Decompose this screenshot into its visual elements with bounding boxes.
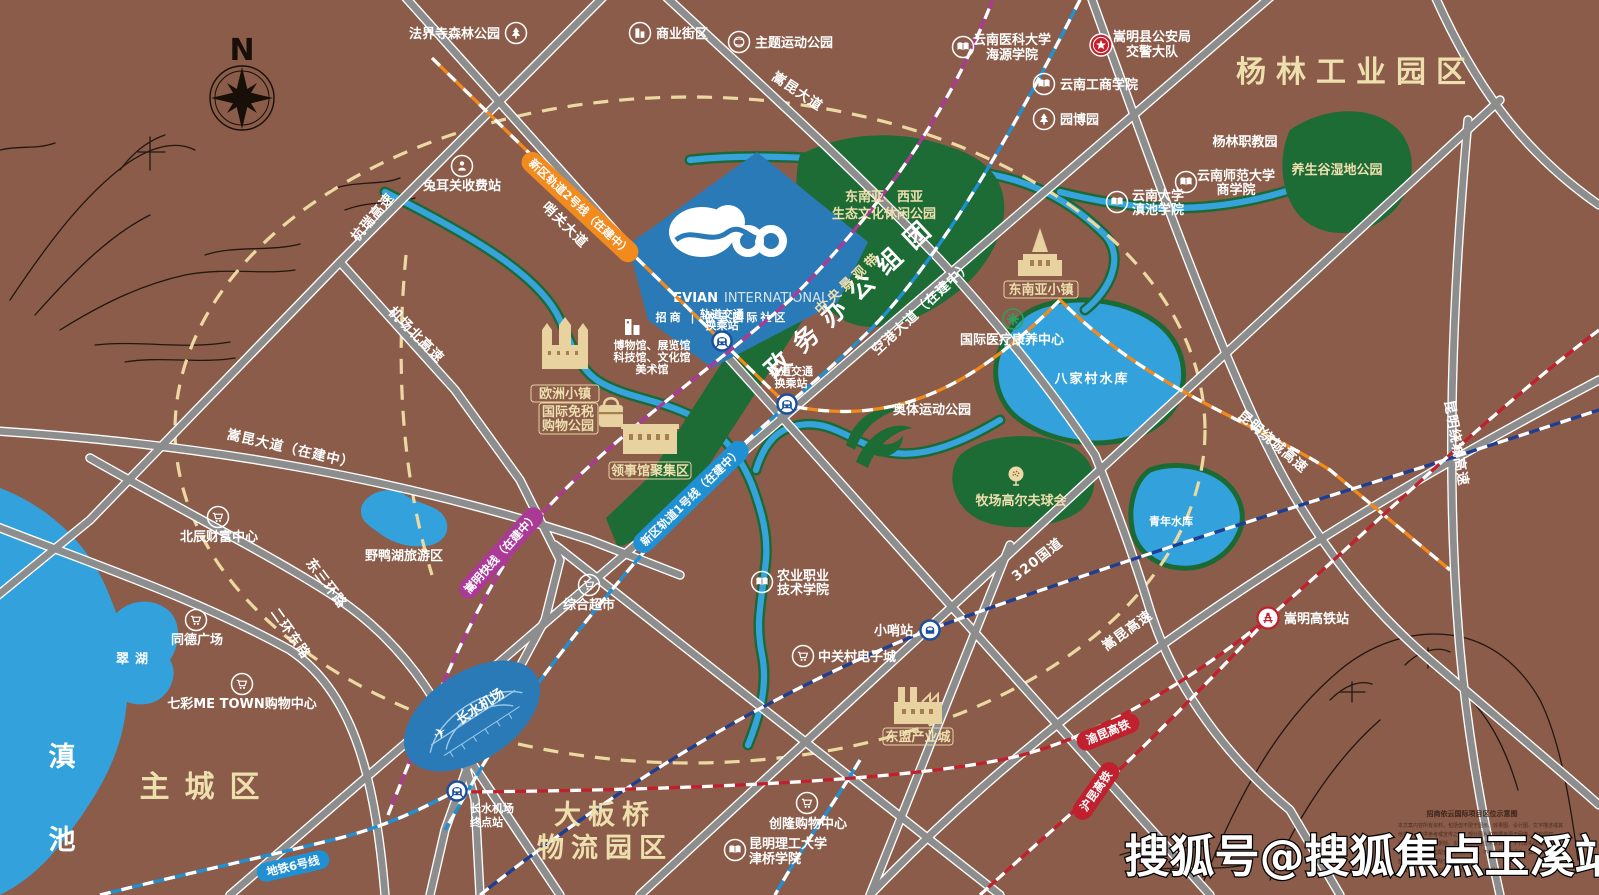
fajiesi-label: 法界寺森林公园 bbox=[409, 26, 500, 42]
compass-n: N bbox=[229, 33, 254, 68]
transfer-station-icon-2 bbox=[778, 395, 797, 414]
theme-sports-label: 主题运动公园 bbox=[755, 35, 833, 51]
logo-en-light: INTERNATIONAL bbox=[724, 291, 829, 306]
kmust-label-2: 津桥学院 bbox=[749, 851, 801, 867]
yuanboyuan-label: 园博园 bbox=[1060, 112, 1099, 128]
chuanglong-label: 创隆购物中心 bbox=[768, 816, 847, 832]
region-dabanqiao-1: 大板桥 bbox=[554, 800, 656, 831]
yn-medical-label-2: 海源学院 bbox=[986, 47, 1038, 63]
location-map: 滇池 bbox=[0, 0, 1599, 895]
zhongguancun-label: 中关村电子城 bbox=[818, 649, 896, 665]
supermarket-label: 综合超市 bbox=[563, 597, 615, 613]
qingnian-label: 青年水库 bbox=[1149, 514, 1193, 528]
golf-park bbox=[952, 436, 1094, 527]
legend-line-1: 本文案内容所有资料，包括但不限于图示、效果图、设计图、文字描述或其 bbox=[1398, 822, 1563, 829]
duty-free-label-2: 购物公园 bbox=[542, 418, 594, 434]
tuerguan-toll-label: 兔耳关收费站 bbox=[422, 178, 501, 194]
tongde-label: 同德广场 bbox=[171, 632, 223, 648]
changshui-terminal-label-2: 终点站 bbox=[470, 815, 503, 829]
museum-label-3: 美术馆 bbox=[636, 362, 669, 376]
museum-label-2: 科技馆、文化馆 bbox=[614, 350, 691, 364]
yeyahu-label: 野鸭湖旅游区 bbox=[365, 548, 443, 564]
bajiacun-label: 八家村水库 bbox=[1053, 371, 1129, 387]
europe-town-label: 欧洲小镇 bbox=[539, 386, 591, 402]
changshui-terminal-label-1: 长水机场 bbox=[470, 801, 514, 815]
se-asia-town-label: 东南亚小镇 bbox=[1008, 282, 1073, 298]
museum-label-1: 博物馆、展览馆 bbox=[614, 338, 691, 352]
transfer-station-icon-1 bbox=[713, 332, 732, 351]
se-asia-park-label-1: 东南亚、西亚 bbox=[845, 189, 923, 205]
xiaoshao-station-label: 小哨站 bbox=[874, 623, 913, 639]
region-dabanqiao-2: 物流园区 bbox=[537, 833, 673, 864]
qicai-label: 七彩ME TOWN购物中心 bbox=[167, 696, 316, 712]
watermark: 搜狐号@搜狐焦点玉溪站 bbox=[1124, 830, 1599, 883]
dianchi-label: 滇池 bbox=[44, 742, 76, 895]
region-main-city: 主城区 bbox=[140, 770, 275, 805]
transfer-station-2-label-1: 轨道交通 bbox=[769, 364, 813, 378]
duty-free-label-1: 国际免税 bbox=[542, 404, 594, 420]
yn-univ-label-1: 云南大学 bbox=[1132, 188, 1184, 204]
transfer-station-2-label-2: 换乘站 bbox=[775, 376, 808, 390]
se-asia-park-label-2: 生态文化休闲公园 bbox=[832, 206, 936, 222]
songming-hsr-station-icon bbox=[1258, 608, 1279, 629]
region-yanglin-industrial: 杨林工业园区 bbox=[1236, 55, 1476, 90]
legend-title: 招商依云国际项目区位示意图 bbox=[1427, 809, 1518, 818]
asean-label: 东盟产业城 bbox=[885, 729, 950, 745]
songming-hsr-station-label: 嵩明高铁站 bbox=[1284, 611, 1349, 627]
business-street-label: 商业街区 bbox=[656, 26, 708, 42]
cuihu-label: 翠湖 bbox=[116, 652, 154, 667]
xiaoshao-station-icon bbox=[921, 621, 940, 640]
yanglin-vocational-label: 杨林职教园 bbox=[1212, 134, 1277, 150]
kmust-label-1: 昆明理工大学 bbox=[749, 836, 827, 852]
yn-normal-label-2: 商学院 bbox=[1216, 182, 1255, 198]
yn-tech-business-label: 云南工商学院 bbox=[1060, 77, 1138, 93]
police-icon bbox=[1090, 34, 1112, 56]
yangshenggu-label: 养生谷湿地公园 bbox=[1290, 162, 1382, 178]
police-label-1: 嵩明县公安局 bbox=[1113, 29, 1191, 45]
yn-normal-label-1: 云南师范大学 bbox=[1197, 168, 1275, 184]
aoti-label: 奥体运动公园 bbox=[893, 402, 971, 418]
agri-label-2: 技术学院 bbox=[777, 582, 829, 598]
beichen-label: 北辰财富中心 bbox=[180, 529, 258, 545]
transfer-station-1-label-2: 换乘站 bbox=[706, 318, 739, 332]
police-label-2: 交警大队 bbox=[1126, 44, 1179, 60]
consulate-label: 领事馆聚集区 bbox=[611, 463, 689, 479]
yn-univ-label-2: 滇池学院 bbox=[1132, 202, 1184, 218]
changshui-terminal-icon bbox=[448, 782, 467, 801]
agri-label-1: 农业职业 bbox=[776, 568, 829, 584]
intl-medical-label: 国际医疗康养中心 bbox=[960, 332, 1064, 348]
yn-medical-label-1: 云南医科大学 bbox=[973, 32, 1051, 48]
golf-label: 牧场高尔夫球会 bbox=[975, 493, 1067, 509]
consulate-building bbox=[621, 424, 679, 454]
